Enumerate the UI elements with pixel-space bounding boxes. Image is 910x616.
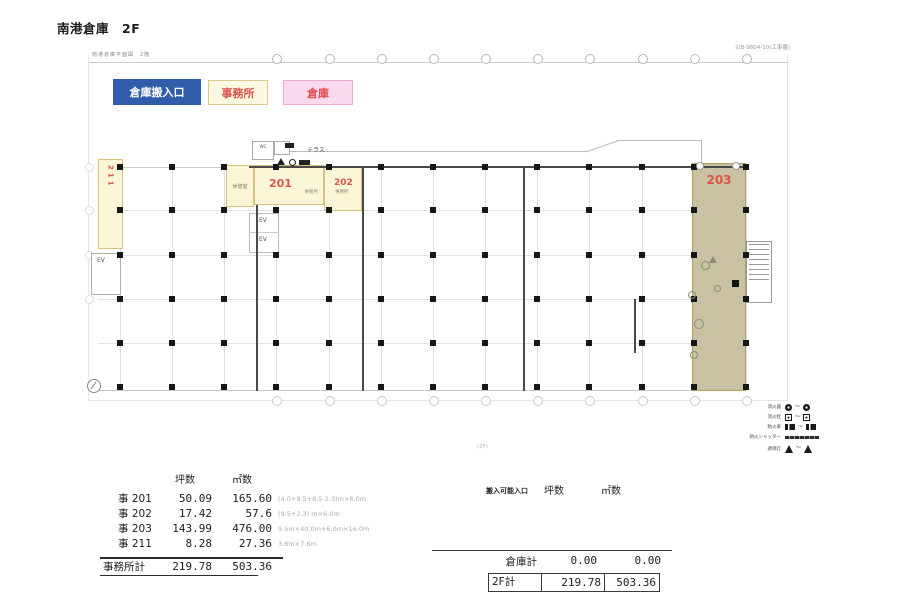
column-marker <box>221 207 227 213</box>
column-marker <box>221 252 227 258</box>
column-marker <box>534 296 540 302</box>
wc-room: WC <box>252 141 274 160</box>
column-marker <box>430 252 436 258</box>
elevator-label: EV <box>97 257 105 264</box>
fire-extinguisher-icon <box>289 159 296 166</box>
room-211-number: 211 <box>107 165 115 189</box>
axis-bubble <box>638 396 648 406</box>
column-marker <box>691 252 697 258</box>
column-marker <box>482 296 488 302</box>
table-row: 事 203 143.99 476.00 9.5m×40.0m+6.0m×16.0… <box>98 521 410 536</box>
column-marker <box>534 340 540 346</box>
axis-bubble <box>85 206 94 215</box>
axis-bubble <box>481 54 491 64</box>
legend-row-extinguisher: 消火器 ～ <box>747 402 827 412</box>
column-marker <box>117 252 123 258</box>
column-marker <box>378 207 384 213</box>
wall <box>249 166 746 168</box>
room-202-number: 202 <box>334 178 353 188</box>
column-marker <box>586 340 592 346</box>
wc-label: WC <box>260 144 267 149</box>
column-marker <box>117 340 123 346</box>
column-marker <box>378 384 384 390</box>
column-marker <box>117 207 123 213</box>
column-marker <box>378 296 384 302</box>
axis-bubble <box>325 396 335 406</box>
column-marker <box>534 252 540 258</box>
column-marker <box>534 384 540 390</box>
axis-bubble <box>690 54 700 64</box>
column-marker <box>691 207 697 213</box>
table-row: 事 211 8.28 27.36 3.6m×7.6m <box>98 536 410 551</box>
north-arrow-icon <box>87 379 101 393</box>
guide-light-icon <box>804 445 812 453</box>
top-axis-line <box>89 62 789 63</box>
terrace-line <box>616 140 702 141</box>
legend-row-guide-light: 誘導灯 ～ <box>747 442 827 455</box>
column-marker <box>639 252 645 258</box>
plan-bottom-line <box>89 390 746 391</box>
wall <box>256 205 258 391</box>
plan-symbol-circle <box>690 351 698 359</box>
column-marker <box>430 384 436 390</box>
column-marker <box>221 296 227 302</box>
column-marker <box>117 296 123 302</box>
column-marker <box>117 164 123 170</box>
fire-extinguisher-icon <box>803 404 810 411</box>
grid-line-h <box>98 210 746 211</box>
room-203-number: 203 <box>693 173 745 187</box>
staircase <box>746 241 772 303</box>
fire-extinguisher-icon <box>785 404 792 411</box>
legend-chip-warehouse: 倉庫 <box>283 80 353 105</box>
plan-symbol-circle <box>732 162 740 170</box>
wall <box>634 299 636 353</box>
axis-bubble <box>272 396 282 406</box>
column-marker <box>326 164 332 170</box>
grid-line-h <box>98 255 746 256</box>
office-area-table: 坪数 ㎡数 事 201 50.09 165.60 (4.0+9.5+8.5-2.… <box>98 471 410 576</box>
grid-line-v <box>537 167 538 390</box>
plan-caption: 南港倉庫平面図 2階 <box>92 51 150 58</box>
column-marker <box>169 207 175 213</box>
room-202: 202 事務所 <box>324 166 362 211</box>
column-marker <box>326 252 332 258</box>
plan-symbol-circle <box>696 162 704 170</box>
wall <box>523 167 525 391</box>
fire-hydrant-icon <box>785 414 792 421</box>
column-marker <box>586 296 592 302</box>
column-marker <box>430 296 436 302</box>
column-marker <box>743 340 749 346</box>
column-marker <box>743 296 749 302</box>
column-marker <box>639 340 645 346</box>
plan-symbol-triangle <box>709 256 717 263</box>
axis-bubble <box>325 54 335 64</box>
column-marker <box>326 384 332 390</box>
fire-door-icon <box>785 424 795 430</box>
column-marker <box>482 340 488 346</box>
room-201-number: 201 <box>269 177 292 190</box>
room-211: 211 <box>98 159 123 249</box>
room-201: 201 事務所 <box>254 165 324 205</box>
axis-bubble <box>533 396 543 406</box>
column-marker <box>586 164 592 170</box>
room-203: 203 <box>692 163 746 391</box>
plan-symbol-circle <box>714 285 721 292</box>
elevator-left: EV <box>91 253 121 295</box>
column-marker <box>117 384 123 390</box>
column-marker <box>326 340 332 346</box>
wall <box>362 167 364 391</box>
table-divider <box>432 550 672 551</box>
terrace-line <box>586 141 618 153</box>
column-marker <box>691 384 697 390</box>
column-marker <box>169 164 175 170</box>
guide-light-icon <box>785 445 793 453</box>
elevator-shafts: EV EV <box>249 213 279 253</box>
column-marker <box>378 252 384 258</box>
column-marker <box>221 384 227 390</box>
summary-table: 搬入可能入口 坪数 ㎡数 倉庫計 0.00 0.00 2F計 219.78 50… <box>432 477 678 602</box>
column-marker <box>639 384 645 390</box>
legend-chip-office: 事務所 <box>208 80 268 105</box>
grid-line-h <box>98 343 746 344</box>
col-header-tsubo: 坪数 <box>544 482 564 497</box>
col-header-tsubo: 坪数 <box>158 471 212 486</box>
column-marker <box>586 384 592 390</box>
column-marker <box>326 207 332 213</box>
fire-door-icon <box>285 143 294 148</box>
column-marker <box>221 340 227 346</box>
axis-bubble <box>272 54 282 64</box>
col-header-sqm: ㎡数 <box>601 482 621 497</box>
column-marker <box>430 207 436 213</box>
column-marker <box>639 296 645 302</box>
warehouse-total-row: 倉庫計 0.00 0.00 <box>432 554 672 569</box>
plan-symbol-circle <box>694 319 704 329</box>
axis-bubble <box>85 163 94 172</box>
column-marker <box>482 384 488 390</box>
legend-chip-warehouse-entrance: 倉庫搬入口 <box>113 79 201 105</box>
fire-hydrant-icon <box>803 414 810 421</box>
stair-hatch <box>749 244 769 280</box>
grid-line-v <box>433 167 434 390</box>
column-marker <box>326 296 332 302</box>
column-marker <box>482 207 488 213</box>
fire-door-icon <box>732 280 739 287</box>
elevator-shaft-2: EV <box>250 233 278 252</box>
column-marker <box>378 164 384 170</box>
column-marker <box>639 164 645 170</box>
page-title: 南港倉庫 2F <box>57 18 140 37</box>
column-marker <box>273 384 279 390</box>
column-marker <box>273 340 279 346</box>
grid-line-v <box>589 167 590 390</box>
table-row: 事 201 50.09 165.60 (4.0+9.5+8.5-2.3)m×6.… <box>98 491 410 506</box>
elevator-shaft-1: EV <box>250 214 278 233</box>
column-marker <box>378 340 384 346</box>
axis-bubble <box>533 54 543 64</box>
rest-room: 休憩室 <box>226 165 254 207</box>
floor-plan: 211 EV 休憩室 201 事務所 202 事務所 203 テラス WC EV… <box>88 55 788 401</box>
column-marker <box>430 340 436 346</box>
axis-bubble <box>429 396 439 406</box>
office-table-header: 坪数 ㎡数 <box>98 471 410 484</box>
fire-door-icon <box>806 424 816 430</box>
floor-note: (2F) <box>477 444 488 450</box>
grid-line-h <box>98 299 746 300</box>
fire-shutter-icon <box>785 436 819 439</box>
column-marker <box>273 252 279 258</box>
fire-door-icon <box>299 160 310 165</box>
column-marker <box>534 164 540 170</box>
axis-bubble <box>429 54 439 64</box>
axis-bubble <box>742 54 752 64</box>
axis-bubble <box>481 396 491 406</box>
column-marker <box>430 164 436 170</box>
column-marker <box>691 340 697 346</box>
grid-line-v <box>172 167 173 390</box>
grid-line-v <box>485 167 486 390</box>
table-row: 事 202 17.42 57.6 (9.5+2.3) m×6.0m <box>98 506 410 521</box>
axis-bubble <box>85 295 94 304</box>
axis-bubble <box>690 396 700 406</box>
column-marker <box>169 384 175 390</box>
column-marker <box>743 252 749 258</box>
column-marker <box>482 164 488 170</box>
room-202-sublabel: 事務所 <box>335 189 349 195</box>
grid-line-v <box>224 167 225 390</box>
column-marker <box>221 164 227 170</box>
doc-reference: 以B-9804-10(工事番) <box>735 43 790 51</box>
legend-row-hydrant: 消火栓 ～ <box>747 412 827 422</box>
entrance-header: 搬入可能入口 <box>486 486 528 496</box>
room-201-sublabel: 事務所 <box>305 189 319 195</box>
axis-bubble <box>377 396 387 406</box>
grid-line-v <box>642 167 643 390</box>
floor-total-box: 2F計 219.78 503.36 <box>488 573 660 592</box>
axis-bubble <box>585 396 595 406</box>
axis-bubble <box>585 54 595 64</box>
legend-row-fire-door: 防火扉 ～ <box>747 422 827 432</box>
column-marker <box>169 252 175 258</box>
column-marker <box>743 207 749 213</box>
symbol-legend: 消火器 ～ 消火栓 ～ 防火扉 ～ 防火シャッター 誘導灯 ～ <box>747 402 827 455</box>
legend-row-fire-shutter: 防火シャッター <box>747 432 827 442</box>
column-marker <box>639 207 645 213</box>
column-marker <box>586 207 592 213</box>
column-marker <box>169 340 175 346</box>
column-marker <box>273 207 279 213</box>
axis-bubble <box>377 54 387 64</box>
terrace-label: テラス <box>307 145 325 154</box>
column-marker <box>482 252 488 258</box>
guide-light-icon <box>277 158 285 165</box>
column-marker <box>743 384 749 390</box>
axis-bubble <box>638 54 648 64</box>
rest-room-label: 休憩室 <box>232 183 247 190</box>
column-marker <box>743 164 749 170</box>
plan-symbol-circle <box>688 291 696 299</box>
column-marker <box>273 296 279 302</box>
grid-line-v <box>381 167 382 390</box>
col-header-sqm: ㎡数 <box>212 471 272 486</box>
table-underline <box>100 575 258 576</box>
office-total-row: 事務所計 219.78 503.36 <box>98 559 410 574</box>
column-marker <box>586 252 592 258</box>
column-marker <box>169 296 175 302</box>
column-marker <box>534 207 540 213</box>
